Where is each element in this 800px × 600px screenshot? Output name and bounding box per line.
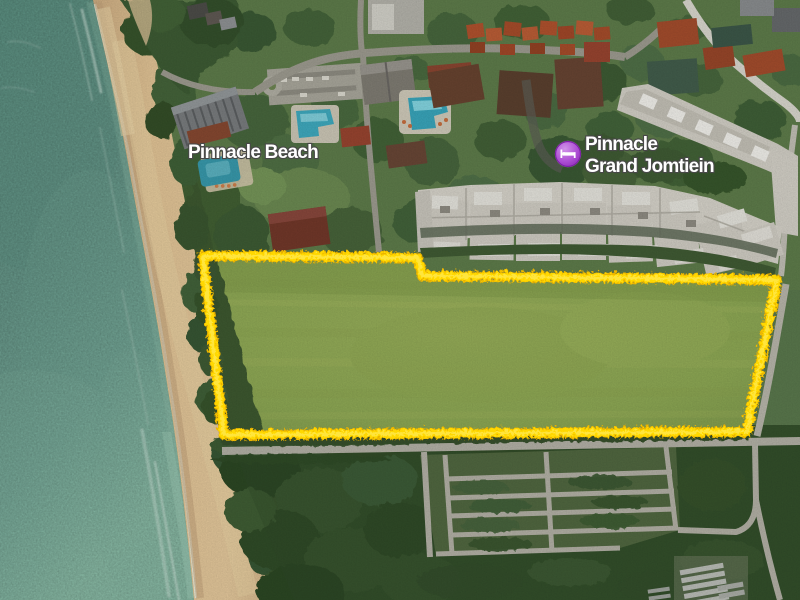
svg-text:Grand Jomtiein: Grand Jomtiein: [585, 156, 714, 177]
svg-text:Pinnacle Beach: Pinnacle Beach: [188, 142, 318, 163]
svg-text:Pinnacle: Pinnacle: [585, 134, 657, 155]
